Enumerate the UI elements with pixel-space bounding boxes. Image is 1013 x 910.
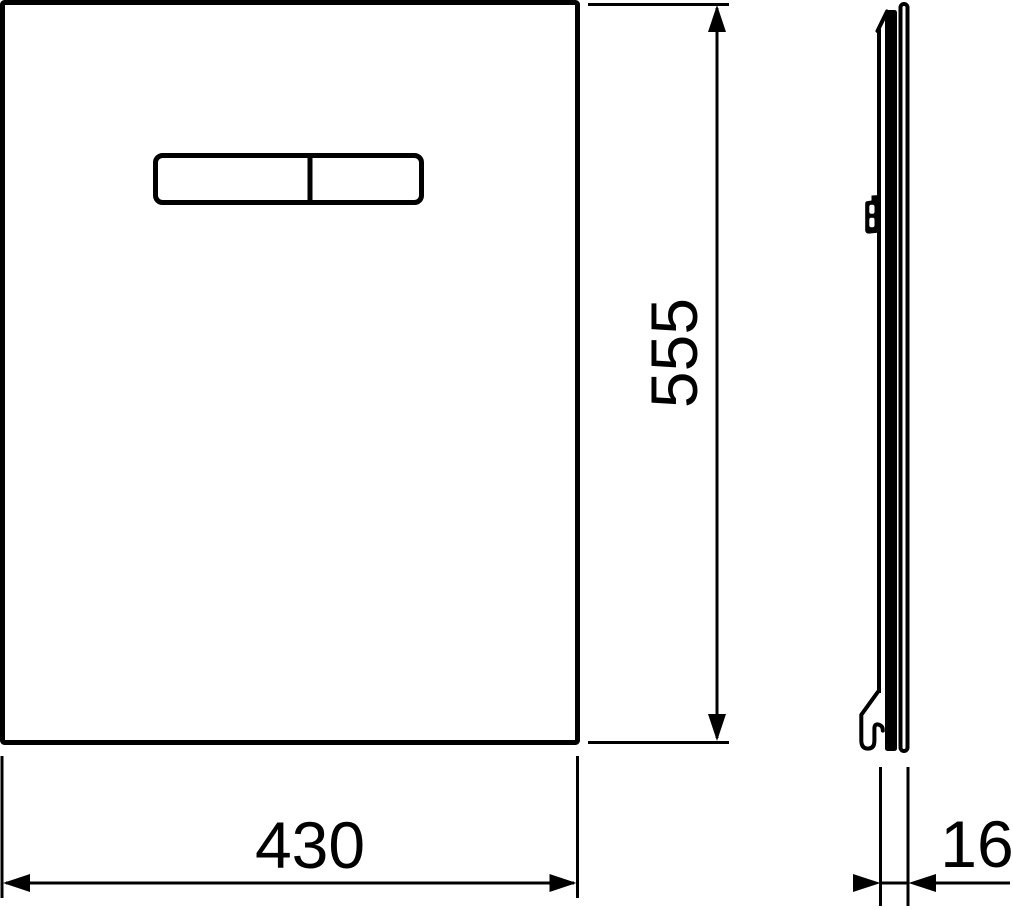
side-view [861, 4, 907, 751]
side-view-mounting-hook [861, 692, 883, 749]
dimension-depth: 16 [853, 767, 1013, 906]
arrowhead-inward-right [853, 874, 881, 892]
clip-body [865, 195, 880, 234]
height-dimension-label: 555 [637, 298, 711, 408]
arrowhead-left [3, 874, 30, 892]
front-view [3, 3, 578, 743]
arrowhead-up [708, 5, 726, 32]
width-dimension-label: 430 [255, 808, 365, 882]
clip-slot-lower [869, 218, 874, 227]
arrowhead-down [708, 714, 726, 741]
dimension-height: 555 [588, 5, 729, 743]
technical-drawing-canvas: 555 430 16 [0, 0, 1013, 910]
side-view-carrier-panel [901, 4, 908, 751]
side-view-button-clip [865, 195, 880, 234]
front-view-plate-outline [3, 3, 578, 743]
depth-dimension-label: 16 [940, 807, 1013, 881]
flush-button-outline [156, 156, 422, 203]
dimension-width: 430 [2, 756, 578, 898]
clip-slot-upper [869, 205, 874, 214]
arrowhead-right [550, 874, 577, 892]
side-view-glass-section [885, 10, 897, 751]
arrowhead-inward-left [909, 874, 937, 892]
dimension-drawing: 555 430 16 [0, 0, 1013, 910]
flush-button-group [156, 155, 422, 203]
